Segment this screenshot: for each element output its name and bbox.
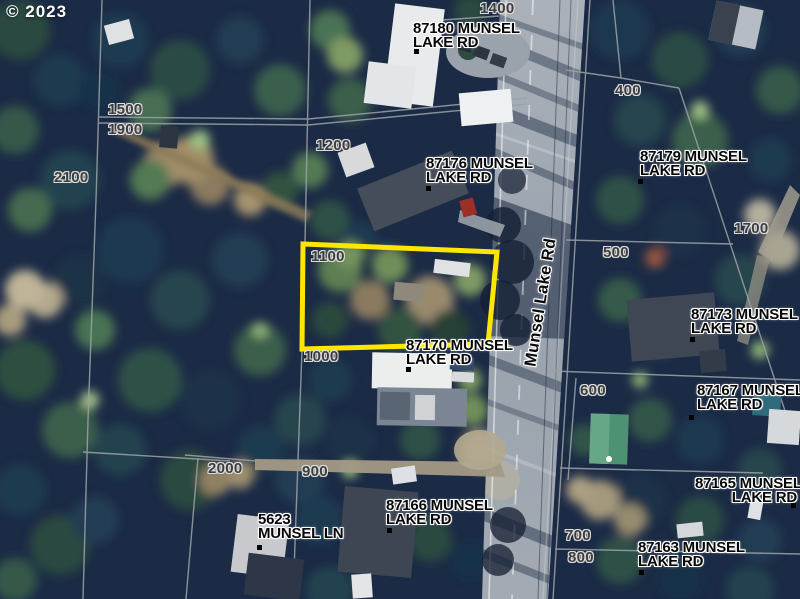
parcel-point-marker-87173 bbox=[690, 337, 695, 342]
parcel-number-400: 400 bbox=[615, 83, 641, 98]
address-label-87173: 87173 MUNSEL LAKE RD bbox=[691, 308, 798, 335]
shed-in-parcel bbox=[393, 282, 424, 303]
building-87180-garage bbox=[459, 89, 514, 126]
building-87180-wing bbox=[364, 61, 417, 109]
address-line: LAKE RD bbox=[691, 322, 798, 336]
parcel-point-marker-87167 bbox=[689, 415, 694, 420]
building-87166-outbuilding bbox=[391, 465, 417, 484]
parcel-point-marker-87163 bbox=[639, 570, 644, 575]
parcel-number-1500: 1500 bbox=[108, 102, 143, 117]
parcel-number-1200: 1200 bbox=[316, 138, 351, 153]
address-line: MUNSEL LN bbox=[258, 527, 343, 541]
parcel-point-marker-5623 bbox=[257, 545, 262, 550]
parcel-number-600: 600 bbox=[580, 383, 606, 398]
parcel-number-700: 700 bbox=[565, 528, 591, 543]
gravel-87170 bbox=[454, 430, 506, 470]
parcel-number-1700: 1700 bbox=[734, 221, 769, 236]
address-label-87167: 87167 MUNSEL LAKE RD bbox=[697, 384, 800, 411]
address-line: LAKE RD bbox=[697, 398, 800, 412]
address-label-87165: 87165 MUNSEL LAKE RD bbox=[695, 477, 797, 504]
address-label-87180: 87180 MUNSEL LAKE RD bbox=[413, 22, 520, 49]
address-line: LAKE RD bbox=[426, 171, 533, 185]
building-1900-shed bbox=[159, 125, 179, 148]
parcel-number-2000: 2000 bbox=[208, 461, 243, 476]
parcel-point-marker-87179 bbox=[638, 179, 643, 184]
parcel-point-marker-87170 bbox=[406, 367, 411, 372]
copyright-watermark: © 2023 bbox=[6, 2, 67, 22]
parcel-number-800: 800 bbox=[568, 550, 594, 565]
address-label-87176: 87176 MUNSEL LAKE RD bbox=[426, 157, 533, 184]
parcel-number-500: 500 bbox=[603, 245, 629, 260]
address-label-87166: 87166 MUNSEL LAKE RD bbox=[386, 499, 493, 526]
address-line: LAKE RD bbox=[386, 513, 493, 527]
parcel-point-marker-87180 bbox=[414, 49, 419, 54]
address-label-87179: 87179 MUNSEL LAKE RD bbox=[640, 150, 747, 177]
parcel-number-2100: 2100 bbox=[54, 170, 89, 185]
address-line: LAKE RD bbox=[406, 353, 513, 367]
building-5623-lower bbox=[244, 553, 305, 599]
white-trailer bbox=[452, 371, 474, 382]
address-line: LAKE RD bbox=[695, 491, 797, 505]
address-line: LAKE RD bbox=[638, 555, 745, 569]
parcel-number-900: 900 bbox=[302, 464, 328, 479]
white-car bbox=[351, 573, 373, 598]
parcel-point-marker-87165 bbox=[791, 503, 796, 508]
parcel-point-marker-87176 bbox=[426, 186, 431, 191]
address-label-87170: 87170 MUNSEL LAKE RD bbox=[406, 339, 513, 366]
parcel-point-marker-87166 bbox=[387, 528, 392, 533]
address-line: LAKE RD bbox=[413, 36, 520, 50]
address-label-5623: 5623 MUNSEL LN bbox=[258, 513, 343, 540]
aerial-map: © 2023 Munsel Lake Rd 1400 1500 1900 210… bbox=[0, 0, 800, 599]
address-label-87163: 87163 MUNSEL LAKE RD bbox=[638, 541, 745, 568]
parcel-number-1400: 1400 bbox=[480, 1, 515, 16]
building-87163-bit bbox=[676, 522, 703, 539]
parcel-number-1000: 1000 bbox=[304, 349, 339, 364]
address-line: LAKE RD bbox=[640, 164, 747, 178]
parcel-number-1100: 1100 bbox=[311, 249, 345, 264]
parcel-number-1900: 1900 bbox=[108, 122, 143, 137]
